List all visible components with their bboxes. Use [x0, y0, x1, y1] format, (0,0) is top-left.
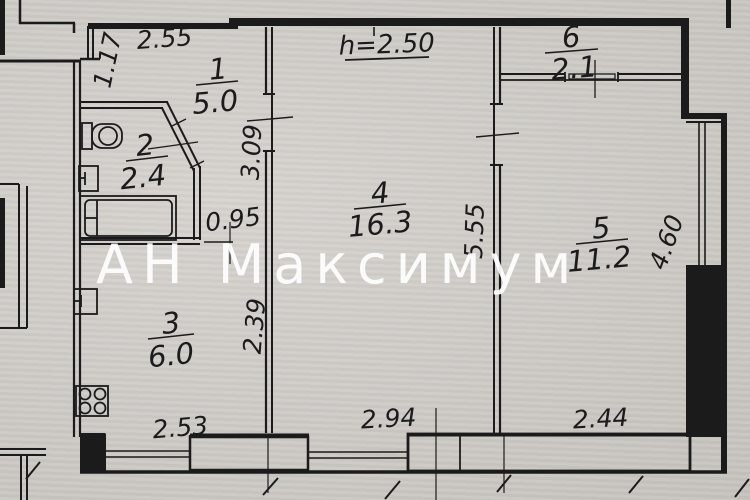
- right-wall-lower: [686, 265, 727, 437]
- room1-area: 5.0: [191, 83, 240, 121]
- room1-number: 1: [207, 51, 228, 86]
- dim-hall-length: 3.09: [236, 123, 268, 180]
- dim-room5-length: 4.60: [643, 211, 689, 273]
- bottom-wall-right-band: [408, 434, 690, 471]
- kitchen-sink-icon: [74, 289, 97, 314]
- right-window: [686, 122, 727, 266]
- dim-ceiling-height: h=2.50: [338, 28, 435, 61]
- diagonal-wall: [162, 108, 194, 171]
- floor-plan: 1 5.0 2 2.4 3 6.0 4 16.3 5 11.2 6 2.1 2.…: [0, 0, 750, 500]
- room2-area: 2.4: [118, 158, 167, 197]
- right-wall-upper: [681, 18, 689, 119]
- pier-left: [80, 433, 105, 472]
- bathtub-icon: [80, 196, 176, 240]
- room2-number: 2: [134, 127, 156, 163]
- pier-middle: [190, 437, 308, 470]
- dim-room5-width: 2.44: [572, 403, 629, 435]
- top-wall-main: [229, 18, 689, 26]
- room6-area: 2.1: [550, 49, 599, 87]
- dim-kitchen-length: 2.39: [238, 297, 272, 355]
- room3-area: 6.0: [146, 336, 195, 375]
- dim-kitchen-width: 2.53: [151, 411, 209, 445]
- dim-top-hall-width: 2.55: [136, 22, 194, 55]
- room6-number: 6: [560, 19, 581, 54]
- dim-living-length: 5.55: [459, 203, 490, 260]
- sink-icon: [79, 166, 98, 191]
- dim-living-width: 2.94: [360, 403, 417, 435]
- wall-hall-living: [263, 27, 275, 493]
- room3-number: 3: [160, 305, 182, 341]
- room5-area: 11.2: [565, 239, 632, 278]
- living-room-window: [308, 435, 408, 472]
- floor-plan-drawing: 1 5.0 2 2.4 3 6.0 4 16.3 5 11.2 6 2.1 2.…: [0, 0, 750, 500]
- room4-area: 16.3: [346, 204, 413, 243]
- toilet-icon: [82, 123, 122, 149]
- dim-bath-corridor: 0.95: [204, 202, 263, 238]
- wall-living-room5: [490, 27, 504, 493]
- right-step-wall: [681, 113, 727, 119]
